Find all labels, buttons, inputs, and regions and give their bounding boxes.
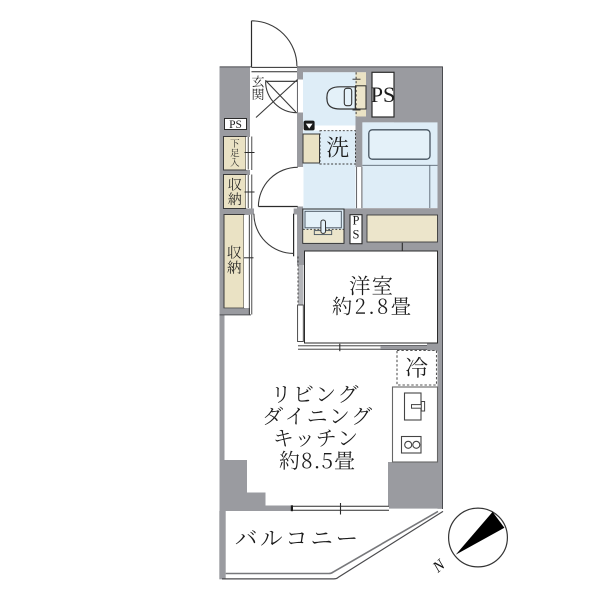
svg-text:PS: PS <box>371 82 395 107</box>
svg-text:P: P <box>353 213 360 227</box>
svg-text:S: S <box>353 228 360 242</box>
svg-text:PS: PS <box>229 119 242 131</box>
